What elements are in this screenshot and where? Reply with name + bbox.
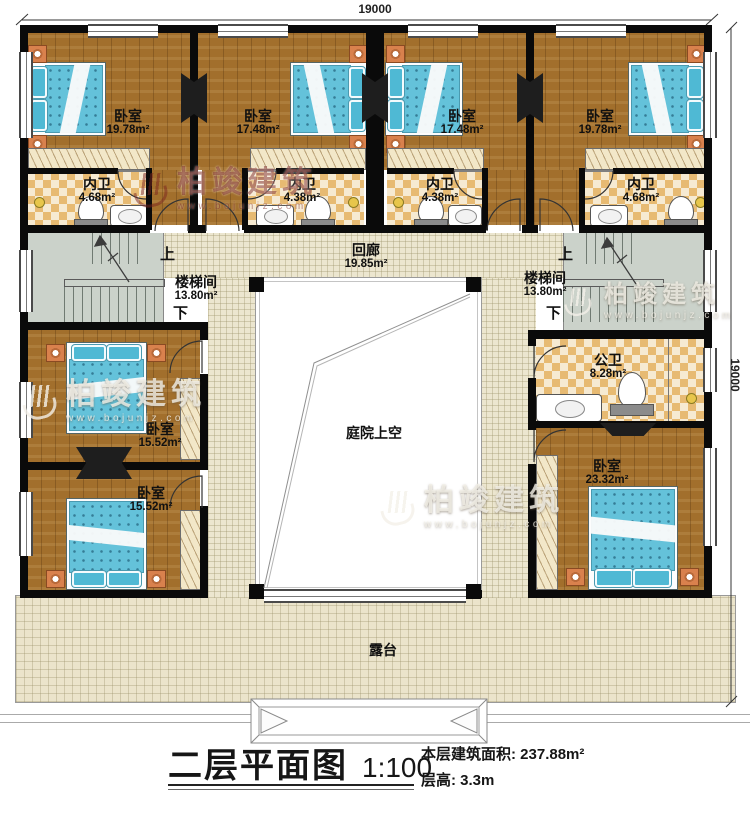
drawing-title-text: 二层平面图 (168, 747, 348, 785)
wall (200, 374, 208, 470)
sink-icon (110, 205, 148, 227)
wall (20, 590, 208, 598)
room-label-bedroom-top-4: 卧室19.78m² (560, 108, 640, 137)
room-label-bedroom-top-3: 卧室17.48m² (422, 108, 502, 137)
nightstand-icon (147, 344, 166, 362)
title-underline (168, 784, 414, 790)
wall (528, 330, 712, 339)
wall (526, 25, 534, 225)
wall (20, 225, 150, 233)
nightstand-icon (46, 344, 65, 362)
vanity-counter (536, 394, 602, 422)
wall (200, 506, 208, 590)
window-symbol (19, 382, 33, 438)
hallway-bedroom2 (202, 170, 246, 225)
room-label-ensuite-1: 内卫4.68m² (57, 176, 137, 205)
room-label-ensuite-4: 内卫4.68m² (601, 176, 681, 205)
wall (188, 225, 206, 233)
sink-icon (590, 205, 628, 227)
wardrobe-symbol (28, 148, 150, 170)
wall (387, 168, 454, 174)
nightstand-icon (386, 45, 405, 63)
floor-drain-icon (34, 197, 45, 208)
wall (20, 322, 208, 330)
wall (276, 168, 364, 174)
toilet-base (610, 404, 654, 416)
towel-rail-icon (686, 393, 697, 404)
wall (482, 168, 488, 230)
wall (528, 590, 712, 598)
nightstand-icon (147, 570, 166, 588)
hallway-bedroom4 (534, 170, 583, 225)
window-symbol (19, 492, 33, 556)
wall (613, 168, 704, 174)
wall (528, 378, 536, 430)
titleblock-info: 本层建筑面积: 237.88m² 层高: 3.3m (421, 742, 584, 795)
room-label-ensuite-2: 内卫4.38m² (262, 176, 342, 205)
window-symbol (703, 250, 717, 312)
floor-height-line: 层高: 3.3m (421, 768, 584, 794)
wall (579, 168, 585, 230)
column (249, 584, 264, 599)
floor-area-line: 本层建筑面积: 237.88m² (421, 742, 584, 768)
bed-symbol (290, 62, 368, 136)
terrace-parapet-lines (0, 714, 750, 723)
stair-rail (64, 279, 165, 287)
window-symbol (703, 448, 717, 546)
wardrobe-symbol (250, 148, 366, 170)
stair-treads (92, 233, 140, 264)
sink-icon (256, 205, 294, 227)
stair-treads (586, 233, 634, 264)
room-label-bedroom-left-2: 卧室15.52m² (111, 485, 191, 514)
column (466, 584, 481, 599)
window-symbol (218, 24, 288, 38)
stair-up-label: 上 (558, 243, 573, 264)
room-label-stair-left: 楼梯间13.80m² (156, 274, 236, 303)
room-label-bedroom-right: 卧室23.32m² (567, 458, 647, 487)
window-symbol (703, 348, 717, 392)
wardrobe-symbol (180, 510, 202, 590)
wall (190, 25, 198, 225)
wall (366, 25, 384, 233)
corridor-strip-left (208, 278, 255, 598)
floor-drain-icon (348, 197, 359, 208)
wardrobe-symbol (536, 455, 558, 590)
courtyard-label: 庭院上空 (324, 425, 424, 441)
drawing-title: 二层平面图1:100 (168, 738, 432, 787)
sink-icon (448, 205, 482, 227)
window-symbol (19, 250, 33, 312)
wardrobe-symbol (585, 148, 706, 170)
railing-symbol (264, 589, 466, 603)
window-symbol (703, 52, 717, 138)
nightstand-icon (566, 568, 585, 586)
wall (244, 225, 486, 233)
window-symbol (408, 24, 478, 38)
terrace-label: 露台 (343, 642, 423, 658)
nightstand-icon (46, 570, 65, 588)
wall (27, 168, 118, 174)
room-label-bedroom-top-2: 卧室17.48m² (218, 108, 298, 137)
nightstand-icon (680, 568, 699, 586)
wall (146, 168, 152, 230)
stair-treads (64, 286, 163, 322)
dimension-right: 19000 (728, 352, 742, 398)
wall (579, 225, 712, 233)
room-label-bedroom-top-1: 卧室19.78m² (88, 108, 168, 137)
wall (200, 330, 208, 340)
room-label-ensuite-3: 内卫4.38m² (400, 176, 480, 205)
room-label-public-bath: 公卫8.28m² (568, 352, 648, 381)
hallway-bedroom3 (482, 170, 526, 225)
wardrobe-symbol (387, 148, 484, 170)
stair-up-label: 上 (160, 243, 175, 264)
window-symbol (556, 24, 626, 38)
floor-plan-page: { "dimensions": { "top": "19000", "right… (0, 0, 750, 813)
column (466, 277, 481, 292)
stair-down-label: 下 (173, 302, 188, 323)
window-symbol (88, 24, 158, 38)
bath-partition (668, 339, 669, 421)
column (249, 277, 264, 292)
window-symbol (19, 52, 33, 138)
wall (528, 464, 536, 590)
hallway-bedroom1 (148, 170, 190, 225)
room-label-bedroom-left-1: 卧室15.52m² (120, 421, 200, 450)
wall (242, 168, 248, 230)
wall (528, 339, 536, 346)
bed-symbol (588, 486, 678, 590)
room-label-stair-right: 楼梯间13.80m² (505, 270, 585, 299)
wall (522, 225, 538, 233)
dimension-top: 19000 (352, 2, 398, 16)
room-label-corridor: 回廊19.85m² (326, 242, 406, 271)
stair-down-label: 下 (546, 302, 561, 323)
